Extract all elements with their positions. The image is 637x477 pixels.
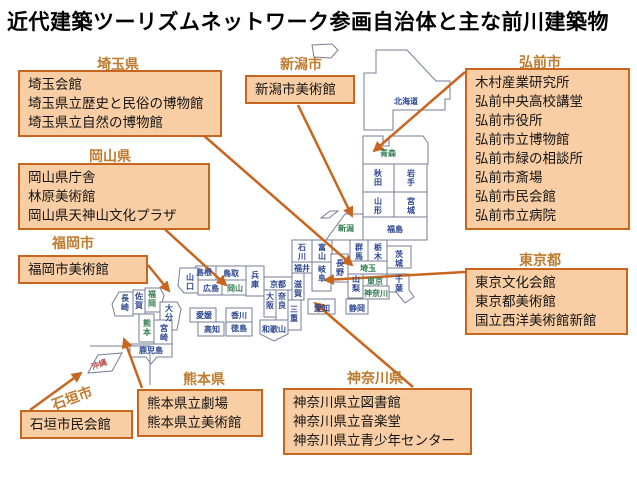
callout-box-hirosaki: 木村産業研究所弘前中央高校講堂弘前市役所弘前市立博物館弘前市緑の相談所弘前市斎場… bbox=[465, 68, 630, 230]
prefecture-label-oita: 大分 bbox=[165, 303, 173, 322]
prefecture-label-fukushima: 福島 bbox=[386, 224, 403, 234]
building-item: 林原美術館 bbox=[28, 187, 200, 206]
prefecture-label-yamaguchi: 山口 bbox=[186, 272, 194, 291]
prefecture-label-shiga: 滋賀 bbox=[293, 279, 302, 298]
callout-title-kumamoto: 熊本県 bbox=[183, 369, 225, 389]
prefecture-label-gifu: 岐阜 bbox=[318, 264, 327, 283]
building-item: 岡山県庁舎 bbox=[28, 168, 200, 187]
prefecture-label-hyogo: 兵庫 bbox=[251, 270, 259, 289]
prefecture-label-kyoto: 京都 bbox=[270, 279, 286, 289]
callout-box-okayama: 岡山県庁舎林原美術館岡山県天神山文化プラザ bbox=[18, 163, 210, 230]
prefecture-label-niigata: 新潟 bbox=[338, 223, 354, 233]
building-item: 埼玉会館 bbox=[28, 75, 212, 94]
building-item: 弘前市立博物館 bbox=[475, 130, 620, 149]
building-item: 神奈川県立青少年センター bbox=[293, 431, 462, 450]
callout-box-niigata: 新潟市美術館 bbox=[245, 75, 355, 104]
prefecture-label-saitama: 埼玉 bbox=[360, 263, 376, 273]
callout-box-kumamoto: 熊本県立劇場熊本県立美術館 bbox=[137, 389, 263, 437]
callout-title-kanagawa: 神奈川県 bbox=[347, 368, 403, 388]
building-item: 木村産業研究所 bbox=[475, 73, 620, 92]
prefecture-label-aomori: 青森 bbox=[380, 148, 397, 158]
prefecture-label-tochigi: 栃木 bbox=[373, 242, 383, 261]
prefecture-label-chiba: 千葉 bbox=[394, 274, 404, 293]
prefecture-label-yamagata: 山形 bbox=[374, 196, 382, 215]
prefecture-label-shimane: 島根 bbox=[196, 267, 212, 277]
prefecture-label-nagano: 長野 bbox=[336, 259, 345, 277]
prefecture-label-kagoshima: 鹿児島 bbox=[139, 345, 163, 355]
prefecture-label-kochi: 高知 bbox=[204, 324, 220, 334]
building-item: 熊本県立劇場 bbox=[147, 394, 253, 413]
callout-box-ishigaki: 石垣市民会館 bbox=[20, 410, 133, 439]
prefecture-label-nara: 奈良 bbox=[277, 291, 287, 310]
building-item: 神奈川県立音楽堂 bbox=[293, 412, 462, 431]
prefecture-label-okayama: 岡山 bbox=[227, 283, 243, 293]
arrow-fukuoka bbox=[148, 265, 169, 291]
prefecture-label-saga: 佐賀 bbox=[134, 291, 143, 310]
building-item: 新潟市美術館 bbox=[255, 80, 345, 99]
prefecture-label-tokushima: 徳島 bbox=[230, 323, 247, 333]
building-item: 熊本県立美術館 bbox=[147, 413, 253, 432]
sado-island bbox=[321, 211, 338, 218]
building-item: 岡山県天神山文化プラザ bbox=[28, 206, 200, 225]
prefecture-label-toyama: 富山 bbox=[318, 242, 326, 261]
prefecture-label-fukuoka: 福岡 bbox=[147, 289, 156, 308]
prefecture-label-aichi: 愛知 bbox=[314, 303, 330, 313]
prefecture-label-miyagi: 宮城 bbox=[407, 196, 415, 215]
building-item: 東京都美術館 bbox=[475, 292, 618, 311]
building-item: 弘前市緑の相談所 bbox=[475, 149, 620, 168]
building-item: 国立西洋美術館新館 bbox=[475, 311, 618, 330]
callout-title-tokyo: 東京都 bbox=[519, 250, 561, 270]
building-item: 石垣市民会館 bbox=[30, 415, 123, 434]
building-item: 福岡市美術館 bbox=[28, 260, 138, 279]
callout-box-kanagawa: 神奈川県立図書館神奈川県立音楽堂神奈川県立青少年センター bbox=[283, 388, 472, 455]
callout-box-saitama: 埼玉会館埼玉県立歴史と民俗の博物館埼玉県立自然の博物館 bbox=[18, 70, 222, 137]
building-item: 東京文化会館 bbox=[475, 273, 618, 292]
page-title: 近代建築ツーリズムネットワーク参画自治体と主な前川建築物 bbox=[7, 6, 609, 36]
arrow-saitama bbox=[202, 134, 352, 265]
building-item: 弘前市立病院 bbox=[475, 206, 620, 225]
prefecture-label-kumamoto: 熊本 bbox=[142, 318, 151, 337]
building-item: 埼玉県立歴史と民俗の博物館 bbox=[28, 94, 212, 113]
building-item: 弘前市斎場 bbox=[475, 168, 620, 187]
prefecture-label-tottori: 鳥取 bbox=[223, 268, 239, 278]
prefecture-label-akita: 秋田 bbox=[373, 168, 383, 187]
prefecture-label-wakayama: 和歌山 bbox=[262, 324, 286, 334]
prefecture-label-kanagawa: 神奈川 bbox=[364, 288, 388, 298]
prefecture-label-nagasaki: 長崎 bbox=[121, 294, 130, 312]
callout-box-tokyo: 東京文化会館東京都美術館国立西洋美術館新館 bbox=[465, 268, 628, 335]
prefecture-label-fukui: 福井 bbox=[293, 263, 310, 273]
prefecture-label-kagawa: 香川 bbox=[230, 310, 247, 320]
tile-hokkaido bbox=[364, 50, 450, 130]
callout-title-niigata: 新潟市 bbox=[280, 54, 322, 74]
prefecture-label-osaka: 大阪 bbox=[266, 291, 275, 310]
prefecture-label-yamanashi: 山梨 bbox=[351, 274, 361, 293]
prefecture-label-iwate: 岩手 bbox=[406, 168, 415, 187]
building-item: 弘前中央高校講堂 bbox=[475, 92, 620, 111]
prefecture-label-tokyo: 東京 bbox=[367, 276, 383, 286]
building-item: 神奈川県立図書館 bbox=[293, 393, 462, 412]
prefecture-label-ehime: 愛媛 bbox=[196, 310, 213, 320]
callout-box-fukuoka: 福岡市美術館 bbox=[18, 255, 148, 284]
building-item: 弘前市役所 bbox=[475, 111, 620, 130]
prefecture-label-ibaraki: 茨城 bbox=[395, 249, 403, 268]
building-item: 弘前市民会館 bbox=[475, 187, 620, 206]
prefecture-label-shizuoka: 静岡 bbox=[349, 303, 365, 313]
prefecture-label-hokkaido: 北海道 bbox=[394, 96, 418, 106]
building-item: 埼玉県立自然の博物館 bbox=[28, 113, 212, 132]
prefecture-label-hiroshima: 広島 bbox=[203, 283, 219, 293]
arrow-niigata bbox=[298, 105, 352, 216]
prefecture-label-gunma: 群馬 bbox=[354, 242, 363, 261]
prefecture-label-miyazaki: 宮崎 bbox=[160, 323, 168, 342]
prefecture-label-ishikawa: 石川 bbox=[297, 243, 306, 261]
prefecture-label-mie: 三重 bbox=[290, 305, 298, 323]
callout-title-fukuoka: 福岡市 bbox=[52, 233, 94, 253]
slide-canvas: 北海道青森秋田岩手山形宮城福島新潟群馬栃木茨城埼玉長野山梨東京千葉神奈川静岡愛知… bbox=[0, 0, 637, 477]
